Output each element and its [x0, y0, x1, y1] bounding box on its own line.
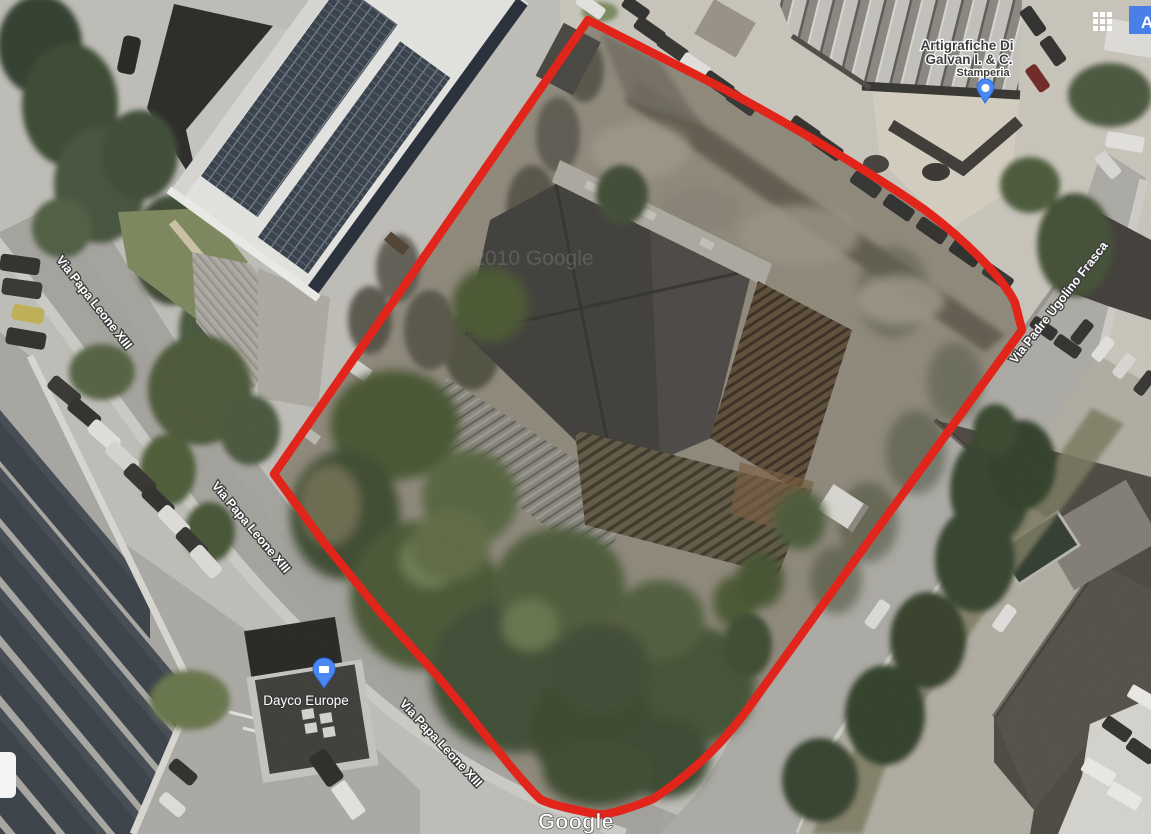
- svg-text:Google: Google: [538, 809, 614, 834]
- svg-text:Artigrafiche Di: Artigrafiche Di: [920, 38, 1013, 53]
- svg-text:© 2010 Google: © 2010 Google: [452, 247, 594, 270]
- svg-text:Stamperia: Stamperia: [956, 67, 1010, 79]
- svg-text:Dayco Europe: Dayco Europe: [263, 693, 349, 708]
- svg-text:Galvan I. & C.: Galvan I. & C.: [925, 52, 1012, 67]
- svg-text:A: A: [1141, 13, 1151, 32]
